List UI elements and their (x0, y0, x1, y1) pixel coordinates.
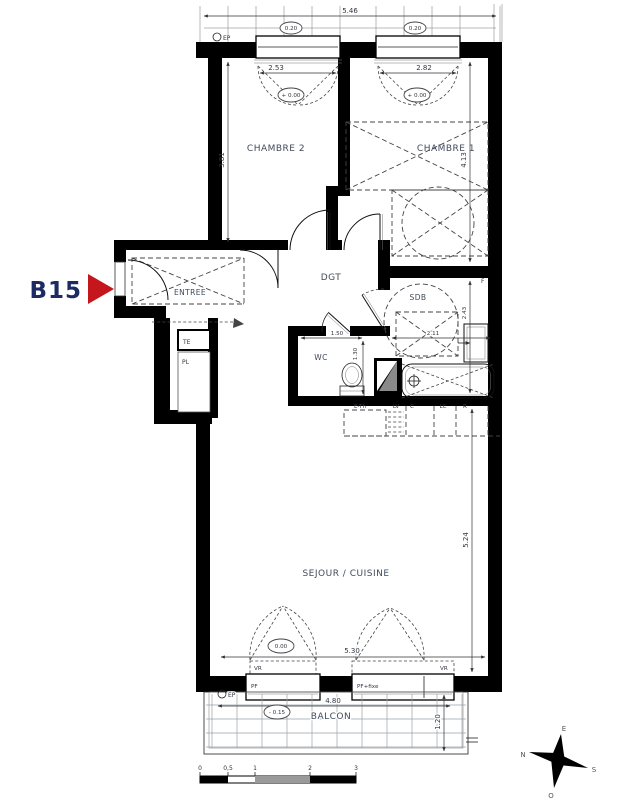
compass-icon: E N S O (520, 725, 596, 800)
compass-south: S (592, 766, 597, 774)
unit-arrow-icon (88, 274, 114, 304)
dim-window1: 2.53 (268, 64, 284, 72)
wc-label: WC (314, 353, 327, 362)
compass-north: N (520, 751, 525, 759)
kitchen-appliance-row: E-Th LV C LC R (344, 404, 500, 436)
ep-route-arrow (233, 318, 244, 328)
entree-label: ENTREE (174, 288, 206, 297)
te-label: TE (182, 339, 191, 346)
appliance-evier: E-Th (354, 404, 366, 410)
dim-sdb-width: 2.11 (427, 331, 440, 337)
dim-balcon-width: 4.80 (325, 697, 341, 705)
dim-wc-depth: 1.30 (353, 347, 359, 360)
scale-2: 2 (308, 765, 312, 772)
dim-sejour-width: 5.30 (344, 647, 360, 655)
floorplan-drawing: 5.46 0.20 0.20 EP (0, 0, 640, 800)
sdb-label: SDB (410, 293, 427, 302)
compass-west: O (548, 792, 554, 800)
dgt-label: DGT (321, 273, 342, 283)
level-chambre1: + 0.00 (408, 93, 427, 99)
ep-marker-bottom: EP (228, 692, 236, 699)
vr-code-1: VR (254, 666, 262, 672)
sejour-label: SEJOUR / CUISINE (302, 569, 389, 579)
compass-east: E (562, 725, 566, 733)
scale-05: 0,5 (223, 765, 233, 772)
f-code: F (481, 278, 485, 285)
pl-label: PL (182, 359, 190, 366)
dim-chambre1-depth: 4.13 (460, 152, 468, 168)
dim-sdb-depth: 2.43 (462, 306, 468, 319)
dim-chambre2-depth: 3.81 (218, 152, 226, 168)
appliance-r: R (463, 404, 467, 410)
window-chambre1: 2.82 + 0.00 (370, 36, 466, 105)
scale-3: 3 (354, 765, 358, 772)
balcony: 4.80 BALCON - 0.15 1.20 EP (204, 690, 478, 754)
level-balcon: - 0.15 (269, 710, 286, 716)
scale-bar: 0 0,5 1 2 3 (198, 765, 358, 783)
dim-total-top: 5.46 (342, 7, 358, 15)
wall-thickness-oval-2: 0.20 (409, 26, 422, 32)
wc-toilet (340, 363, 364, 396)
wall-thickness-oval-1: 0.20 (285, 26, 298, 32)
dim-balcon-depth: 1.20 (434, 714, 442, 730)
window-sejour-1: VR PF 0.00 (240, 606, 326, 700)
floorplan-canvas: 5.46 0.20 0.20 EP (0, 0, 640, 800)
dim-window2: 2.82 (416, 64, 432, 72)
technical-shaft (374, 358, 402, 398)
scale-0: 0 (198, 765, 202, 772)
dim-wc-width: 1.50 (331, 331, 344, 337)
dim-sejour-depth: 5.24 (462, 532, 470, 548)
level-sejour: 0.00 (275, 644, 288, 650)
window-chambre2: 2.53 + 0.00 (250, 36, 346, 105)
washbasin-icon (458, 324, 488, 362)
appliance-lv: LV (393, 404, 400, 410)
appliance-lc: LC (439, 404, 446, 410)
ep-marker-top: EP (223, 35, 231, 42)
scale-1: 1 (253, 765, 257, 772)
pf-fixe-code: PF+fixe (357, 684, 379, 690)
unit-marker: B15 (29, 274, 114, 304)
unit-label: B15 (29, 278, 82, 304)
level-chambre2: + 0.00 (282, 93, 301, 99)
chambre1-closet (346, 122, 488, 259)
vr-code-2: VR (440, 666, 448, 672)
bathtub-icon (402, 364, 494, 398)
window-sejour-2: VR PF+fixe (346, 608, 460, 700)
chambre2-label: CHAMBRE 2 (247, 144, 305, 154)
appliance-c: C (410, 404, 414, 410)
pf-code: PF (251, 684, 258, 690)
balcon-label: BALCON (311, 712, 351, 722)
